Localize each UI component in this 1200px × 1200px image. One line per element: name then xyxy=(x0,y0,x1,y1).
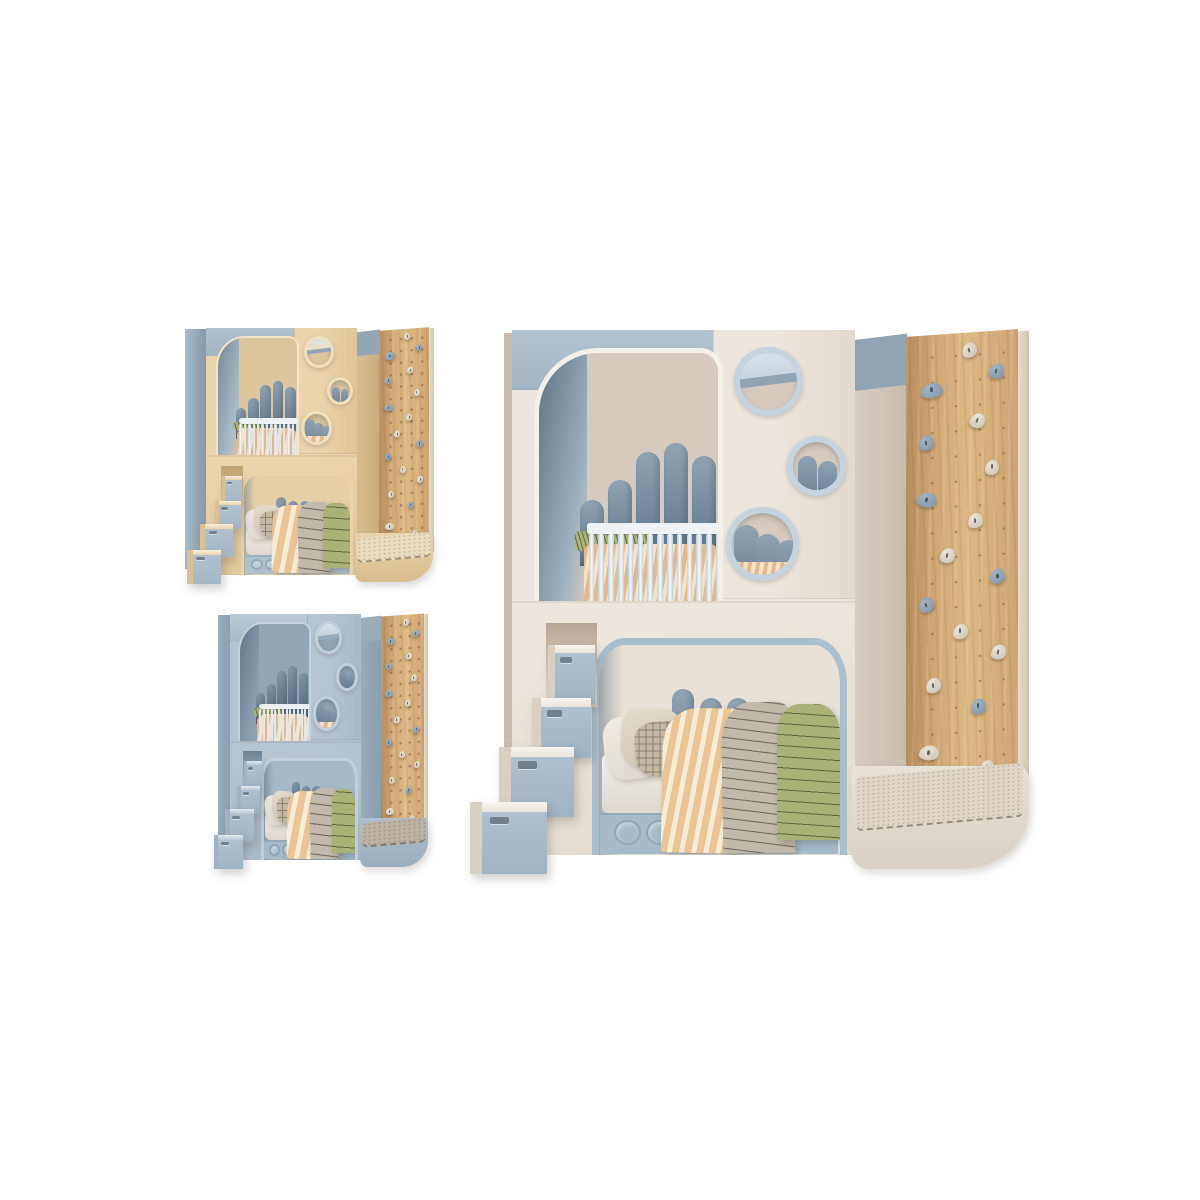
hold-bolt xyxy=(415,632,416,635)
upper-sleep-nook xyxy=(534,348,723,601)
hold-bolt xyxy=(408,789,409,791)
climbing-wall xyxy=(906,329,1018,813)
blanket-green-striped xyxy=(777,704,840,840)
climbing-hold xyxy=(967,512,983,529)
stair-drawer-front xyxy=(193,555,221,584)
hold-bolt xyxy=(388,665,389,668)
climbing-wall xyxy=(381,613,424,839)
upper-sleep-nook xyxy=(216,336,299,455)
climbing-hold xyxy=(921,382,943,399)
hold-bolt xyxy=(388,692,390,695)
hold-bolt xyxy=(389,810,391,813)
hold-bolt xyxy=(408,655,410,658)
hold-bolt xyxy=(968,346,972,352)
climbing-hold xyxy=(916,491,939,510)
drawer-handle xyxy=(227,482,232,485)
climbing-hold xyxy=(411,674,417,682)
crib-rail-bar xyxy=(263,709,265,740)
hold-bolt xyxy=(411,503,412,506)
hold-bolt xyxy=(388,406,390,409)
stair-step-1 xyxy=(214,835,243,869)
porthole-top xyxy=(315,621,341,654)
stair-step-side xyxy=(548,645,556,704)
climbing-hold xyxy=(388,776,395,784)
climbing-hold xyxy=(991,568,1006,584)
hold-bolt xyxy=(391,779,392,782)
hold-bolt xyxy=(388,741,390,744)
climbing-holds xyxy=(906,329,1018,813)
climbing-hold xyxy=(971,698,986,714)
platform-base xyxy=(360,818,428,866)
climbing-hold xyxy=(990,644,1007,661)
hold-bolt xyxy=(414,677,415,679)
drawer-knob xyxy=(614,820,641,846)
velvet-panel xyxy=(332,387,340,403)
climbing-hold xyxy=(388,491,395,499)
drawer-handle xyxy=(518,761,537,768)
porthole-bottom xyxy=(301,411,333,446)
crib-rail-bar xyxy=(257,424,259,455)
crib-rail-bar xyxy=(667,534,673,600)
climbing-holds xyxy=(379,327,429,555)
climbing-hold xyxy=(400,466,406,474)
crib-railing xyxy=(587,523,723,601)
right-side-panel xyxy=(356,330,380,549)
climbing-hold xyxy=(988,363,1005,380)
drawer-knob xyxy=(251,559,263,570)
hold-bolt xyxy=(930,387,934,392)
render-thumbnail-beige xyxy=(183,322,455,589)
stair-step-4 xyxy=(548,645,595,704)
crib-rail-bars xyxy=(239,424,298,455)
stair-step-1 xyxy=(187,550,221,584)
climbing-hold xyxy=(968,411,987,430)
crib-rail-bar xyxy=(638,534,644,600)
crib-rail-bar xyxy=(270,424,272,455)
stair-step-1 xyxy=(470,802,547,874)
climbing-hold xyxy=(405,699,411,707)
crib-rail-bar xyxy=(244,424,246,455)
climbing-hold xyxy=(416,475,424,483)
hold-bolt xyxy=(945,553,948,558)
top-accent-band-side xyxy=(852,334,907,391)
climbing-hold xyxy=(394,430,402,438)
drawer-handle xyxy=(547,710,562,716)
porthole-middle xyxy=(336,663,358,691)
climbing-hold xyxy=(405,652,413,660)
porthole-top xyxy=(304,336,334,369)
drawer-handle xyxy=(221,842,228,845)
climbing-hold xyxy=(919,744,942,761)
crib-railing xyxy=(239,418,299,455)
climbing-hold xyxy=(403,332,411,341)
climbing-hold xyxy=(925,676,942,694)
hold-bolt xyxy=(416,763,417,766)
right-side-panel xyxy=(852,334,907,800)
hold-bolt xyxy=(975,417,979,423)
porthole-top xyxy=(734,347,803,417)
hold-bolt xyxy=(407,702,408,705)
climbing-hold xyxy=(412,629,419,637)
climbing-hold xyxy=(413,761,420,769)
hold-bolt xyxy=(925,602,929,608)
crib-rail-bar xyxy=(282,709,284,740)
climbing-hold xyxy=(384,452,392,461)
climbing-hold xyxy=(918,595,937,615)
crib-rail-bar xyxy=(677,534,683,600)
hold-bolt xyxy=(389,525,391,528)
mid-fascia-seam xyxy=(230,741,362,743)
climbing-hold xyxy=(385,738,393,747)
velvet-panel xyxy=(340,672,347,688)
crib-rail-bar xyxy=(608,534,614,600)
climbing-hold xyxy=(384,403,394,412)
climbing-hold xyxy=(985,459,1000,475)
lower-sleep-nook xyxy=(241,473,353,575)
crib-bedding-glimpse xyxy=(304,436,330,442)
crib-rail-bar xyxy=(297,709,299,740)
crib-rail-bar xyxy=(259,709,261,740)
climbing-hold xyxy=(386,808,395,816)
velvet-panel xyxy=(341,389,349,402)
drawer-handle xyxy=(209,531,217,534)
drawer-handle xyxy=(243,792,249,795)
porthole-tower xyxy=(713,330,855,599)
hold-bolt xyxy=(996,573,998,578)
climbing-hold xyxy=(961,340,979,359)
lower-sleep-nook xyxy=(261,758,359,860)
climbing-hold xyxy=(385,376,393,385)
crib-bedding-glimpse xyxy=(316,722,338,728)
porthole-middle xyxy=(327,377,353,405)
climbing-hold xyxy=(399,751,405,759)
climbing-hold xyxy=(387,638,396,646)
drawer-handle xyxy=(490,817,509,824)
crib-railing xyxy=(259,704,311,741)
crib-rail-bar xyxy=(267,709,269,740)
porthole-middle xyxy=(787,436,846,496)
climbing-hold xyxy=(386,352,396,360)
crib-rail-bar xyxy=(696,534,702,600)
climbing-wall-edge xyxy=(429,328,434,553)
crib-rail-bars xyxy=(589,534,722,600)
stair-drawer-front xyxy=(555,653,594,703)
render-main-cream xyxy=(460,318,1078,885)
hold-bolt xyxy=(390,354,392,357)
hold-bolt xyxy=(387,455,389,458)
right-side-panel xyxy=(360,616,381,834)
climbing-hold xyxy=(413,725,419,733)
hold-bolt xyxy=(410,369,412,372)
blanket-green-striped xyxy=(323,503,351,567)
hold-bolt xyxy=(991,464,993,469)
porthole-tower xyxy=(307,614,361,740)
blanket-green-striped xyxy=(332,789,356,853)
hold-bolt xyxy=(406,335,408,338)
drawer-knob xyxy=(269,844,279,855)
crib-rail-bar xyxy=(301,709,303,740)
climbing-hold xyxy=(414,388,420,396)
velvet-panel xyxy=(818,461,837,490)
crib-rail-bar xyxy=(308,709,310,740)
porthole-bottom xyxy=(313,696,341,730)
crib-rail-bar xyxy=(289,709,291,740)
drawer-handle xyxy=(221,507,228,510)
top-accent-band-side xyxy=(356,330,380,357)
climbing-hold xyxy=(386,662,393,670)
velvet-panel xyxy=(798,456,817,490)
render-thumbnail-blue xyxy=(210,608,447,874)
hold-bolt xyxy=(977,703,979,708)
climbing-hold xyxy=(415,343,423,351)
crib-rail-bar xyxy=(279,424,281,455)
climbing-wall-edge xyxy=(1018,331,1029,808)
crib-rail-bar xyxy=(716,534,722,600)
hold-bolt xyxy=(419,442,420,445)
lower-sleep-nook xyxy=(592,638,847,855)
platform-base xyxy=(355,533,433,582)
climbing-hold xyxy=(406,786,412,794)
hold-bolt xyxy=(932,682,935,688)
crib-rail-bar xyxy=(283,424,285,455)
hold-bolt xyxy=(405,621,406,624)
stair-step-4 xyxy=(222,476,243,504)
hold-bolt xyxy=(997,649,1000,654)
hold-bolt xyxy=(974,517,977,522)
crib-rail-bar xyxy=(274,709,276,740)
hold-bolt xyxy=(959,628,961,633)
crib-rail-bar xyxy=(278,709,280,740)
crib-bedding-glimpse xyxy=(732,562,793,574)
hold-bolt xyxy=(418,346,419,349)
stair-drawer-front xyxy=(218,840,243,869)
hold-bolt xyxy=(390,640,391,643)
climbing-hold xyxy=(385,689,394,698)
crib-rail-bar xyxy=(292,424,294,455)
porthole-tower xyxy=(294,328,356,455)
crib-rail-bar xyxy=(598,534,604,600)
mid-fascia-seam xyxy=(206,455,357,457)
crib-rail-bar xyxy=(647,534,653,600)
drawer-handle xyxy=(196,557,204,560)
climbing-hold xyxy=(417,440,423,448)
porthole-bottom xyxy=(726,507,799,581)
climbing-hold xyxy=(406,413,413,421)
hold-bolt xyxy=(995,368,998,373)
crib-rail-bar xyxy=(253,424,255,455)
crib-rail-bar xyxy=(618,534,624,600)
hold-bolt xyxy=(925,497,929,503)
crib-rail-bar xyxy=(657,534,663,600)
stair-step-4 xyxy=(244,761,262,789)
hold-bolt xyxy=(388,379,389,382)
drawer-handle xyxy=(232,816,239,819)
crib-rail-bar xyxy=(271,709,273,740)
crib-rail-bars xyxy=(259,709,310,740)
mid-fascia-seam xyxy=(512,601,855,603)
crib-rail-bar xyxy=(628,534,634,600)
crib-rail-bar xyxy=(239,424,241,455)
crib-rail-bar xyxy=(287,424,289,455)
crib-rail-bar xyxy=(304,709,306,740)
stair-drawer-front xyxy=(482,812,546,873)
climbing-hold xyxy=(939,547,956,564)
crib-rail-bar xyxy=(296,424,298,455)
platform-base xyxy=(851,766,1029,869)
climbing-holds xyxy=(381,613,424,839)
crib-rail-bar xyxy=(293,709,295,740)
crib-rail-beam xyxy=(587,523,723,535)
crib-rail-bar xyxy=(266,424,268,455)
climbing-hold xyxy=(407,366,415,375)
hold-bolt xyxy=(401,753,402,755)
hold-bolt xyxy=(397,432,398,435)
crib-rail-bar xyxy=(687,534,693,600)
climbing-hold xyxy=(402,618,409,627)
climbing-hold xyxy=(385,522,395,530)
climbing-hold xyxy=(918,434,935,452)
velvet-panel xyxy=(347,675,354,688)
drawer-handle xyxy=(560,657,572,663)
upper-sleep-nook xyxy=(238,622,310,741)
climbing-wall-edge xyxy=(424,614,428,838)
crib-rail-bar xyxy=(286,709,288,740)
drawer-handle xyxy=(248,767,253,770)
hold-bolt xyxy=(925,440,928,446)
crib-rail-bar xyxy=(248,424,250,455)
climbing-hold xyxy=(408,501,414,509)
climbing-hold xyxy=(953,623,968,639)
product-render-sheet xyxy=(0,0,1200,1200)
climbing-hold xyxy=(393,716,400,724)
top-accent-band-side xyxy=(360,616,381,642)
crib-rail-bar xyxy=(706,534,712,600)
hold-bolt xyxy=(403,468,404,471)
climbing-wall xyxy=(379,327,429,555)
hold-bolt xyxy=(416,728,417,730)
hold-bolt xyxy=(419,478,421,481)
hold-bolt xyxy=(396,718,397,721)
hold-bolt xyxy=(417,391,418,394)
crib-rail-bar xyxy=(274,424,276,455)
crib-rail-bar xyxy=(589,534,595,600)
hold-bolt xyxy=(391,493,392,496)
stair-step-side xyxy=(470,802,482,874)
hold-bolt xyxy=(409,416,410,419)
hold-bolt xyxy=(927,749,931,754)
crib-rail-bar xyxy=(261,424,263,455)
